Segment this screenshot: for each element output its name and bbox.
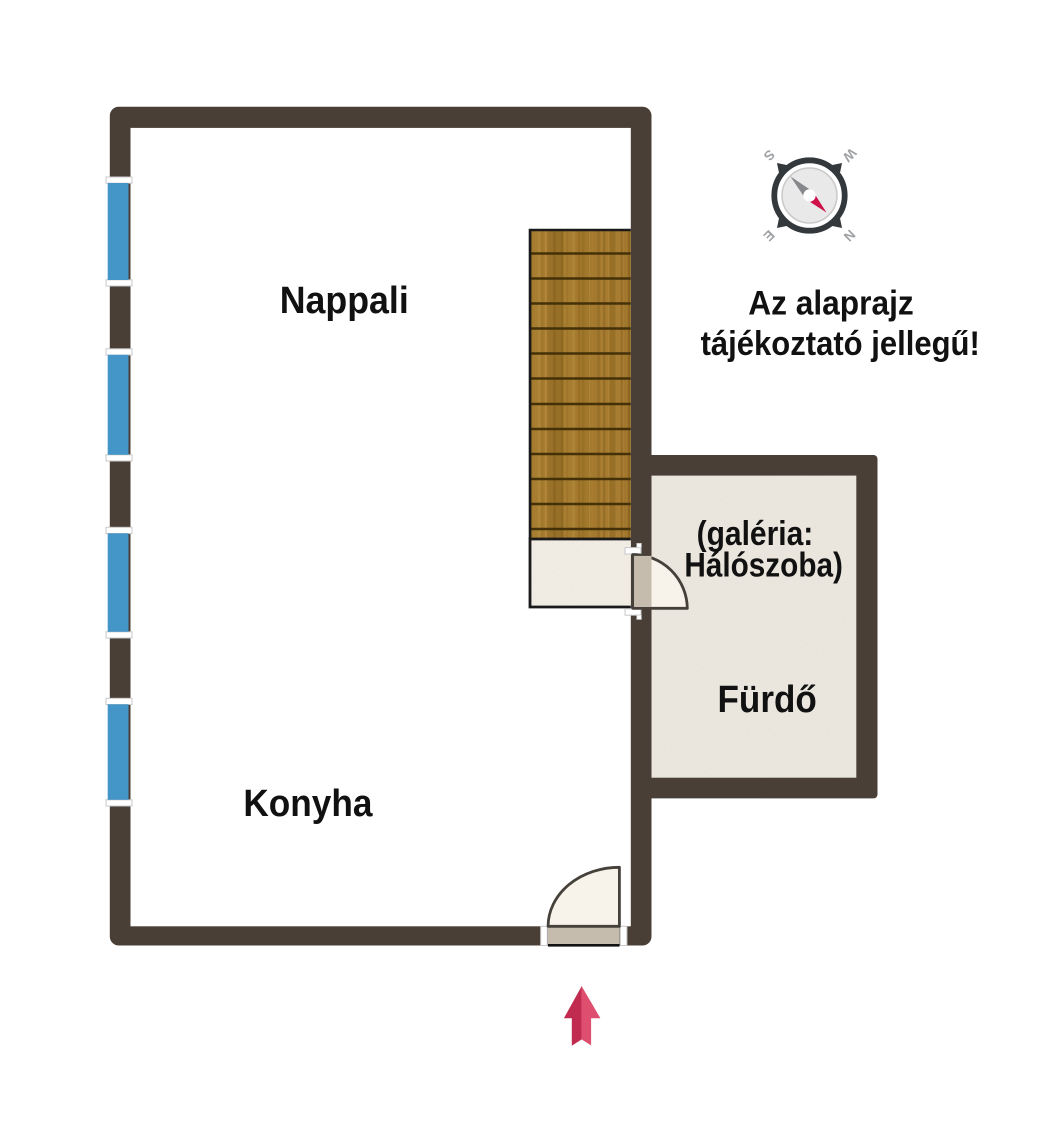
svg-text:Nappali: Nappali [280,280,409,322]
svg-text:tájékoztató jellegű!: tájékoztató jellegű! [701,325,980,363]
svg-text:Hálószoba): Hálószoba) [684,546,843,584]
svg-text:Fürdő: Fürdő [718,679,817,721]
svg-text:Konyha: Konyha [243,783,373,825]
svg-text:Az alaprajz: Az alaprajz [748,284,914,322]
